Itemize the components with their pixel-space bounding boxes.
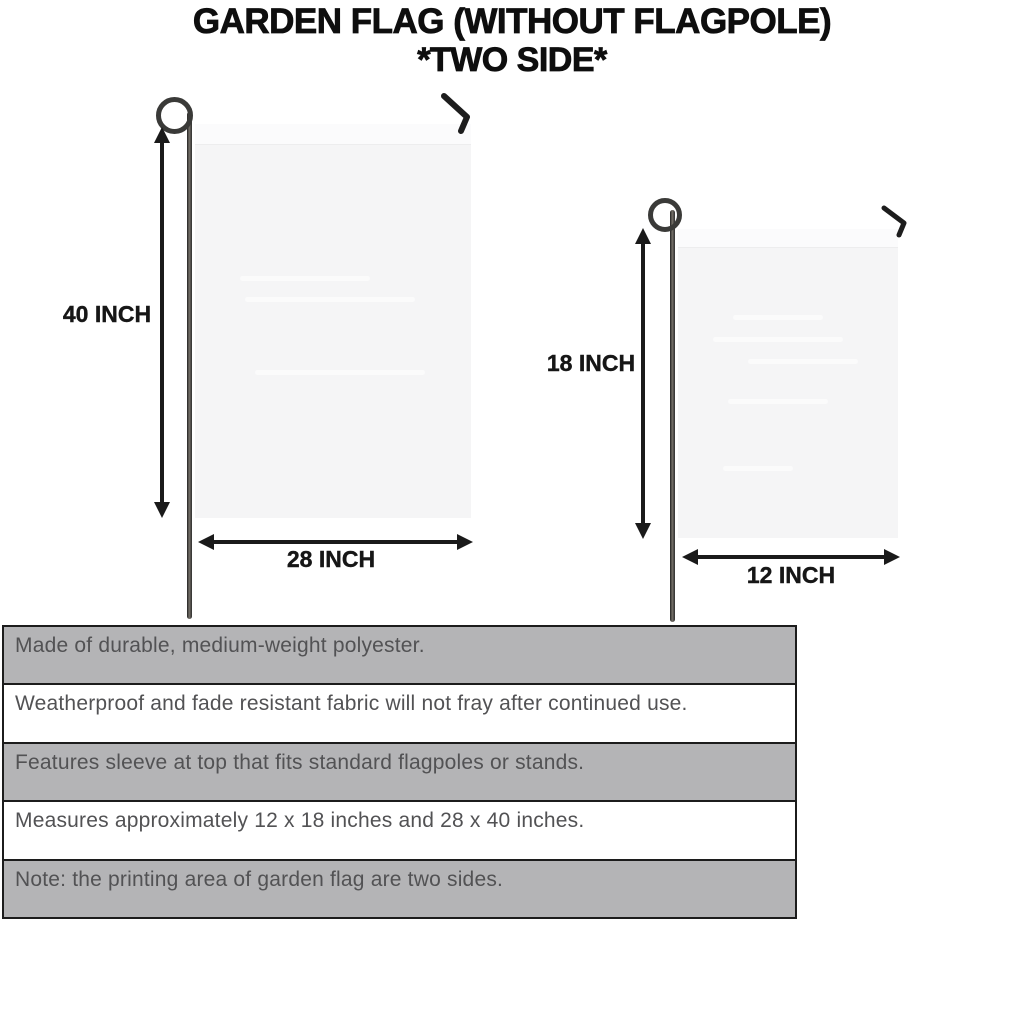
flagpole-large bbox=[187, 112, 192, 619]
fabric-wrinkle bbox=[713, 337, 843, 342]
width-dimension-label-large: 28 INCH bbox=[251, 546, 411, 573]
height-dimension-label-small: 18 INCH bbox=[531, 350, 651, 377]
fabric-wrinkle bbox=[733, 315, 823, 320]
title-line-2: *TWO SIDE* bbox=[0, 42, 1024, 79]
fabric-wrinkle bbox=[748, 359, 858, 364]
page-title: GARDEN FLAG (WITHOUT FLAGPOLE) *TWO SIDE… bbox=[0, 3, 1024, 79]
garden-flag-infographic: GARDEN FLAG (WITHOUT FLAGPOLE) *TWO SIDE… bbox=[0, 0, 1024, 1024]
flag-canvas-small bbox=[678, 229, 898, 538]
feature-row: Measures approximately 12 x 18 inches an… bbox=[4, 800, 795, 858]
fabric-wrinkle bbox=[255, 370, 425, 375]
width-dimension-label-small: 12 INCH bbox=[711, 562, 871, 589]
fabric-wrinkle bbox=[723, 466, 793, 471]
fabric-wrinkle bbox=[728, 399, 828, 404]
pole-hook-icon bbox=[878, 202, 914, 240]
fabric-wrinkle bbox=[240, 276, 370, 281]
feature-row: Note: the printing area of garden flag a… bbox=[4, 859, 795, 917]
flag-canvas-large bbox=[195, 124, 471, 518]
pole-loop-icon bbox=[648, 198, 682, 232]
feature-row: Made of durable, medium-weight polyester… bbox=[4, 627, 795, 683]
title-line-1: GARDEN FLAG (WITHOUT FLAGPOLE) bbox=[0, 3, 1024, 42]
flagpole-small bbox=[670, 210, 675, 622]
pole-hook-icon bbox=[437, 89, 483, 137]
feature-row: Weatherproof and fade resistant fabric w… bbox=[4, 683, 795, 741]
feature-row: Features sleeve at top that fits standar… bbox=[4, 742, 795, 800]
fabric-wrinkle bbox=[245, 297, 415, 302]
flag-sleeve-small bbox=[678, 229, 898, 248]
flag-sleeve-large bbox=[195, 124, 471, 145]
height-dimension-arrow-small bbox=[633, 227, 653, 540]
features-table: Made of durable, medium-weight polyester… bbox=[2, 625, 797, 919]
height-dimension-label-large: 40 INCH bbox=[47, 301, 167, 328]
